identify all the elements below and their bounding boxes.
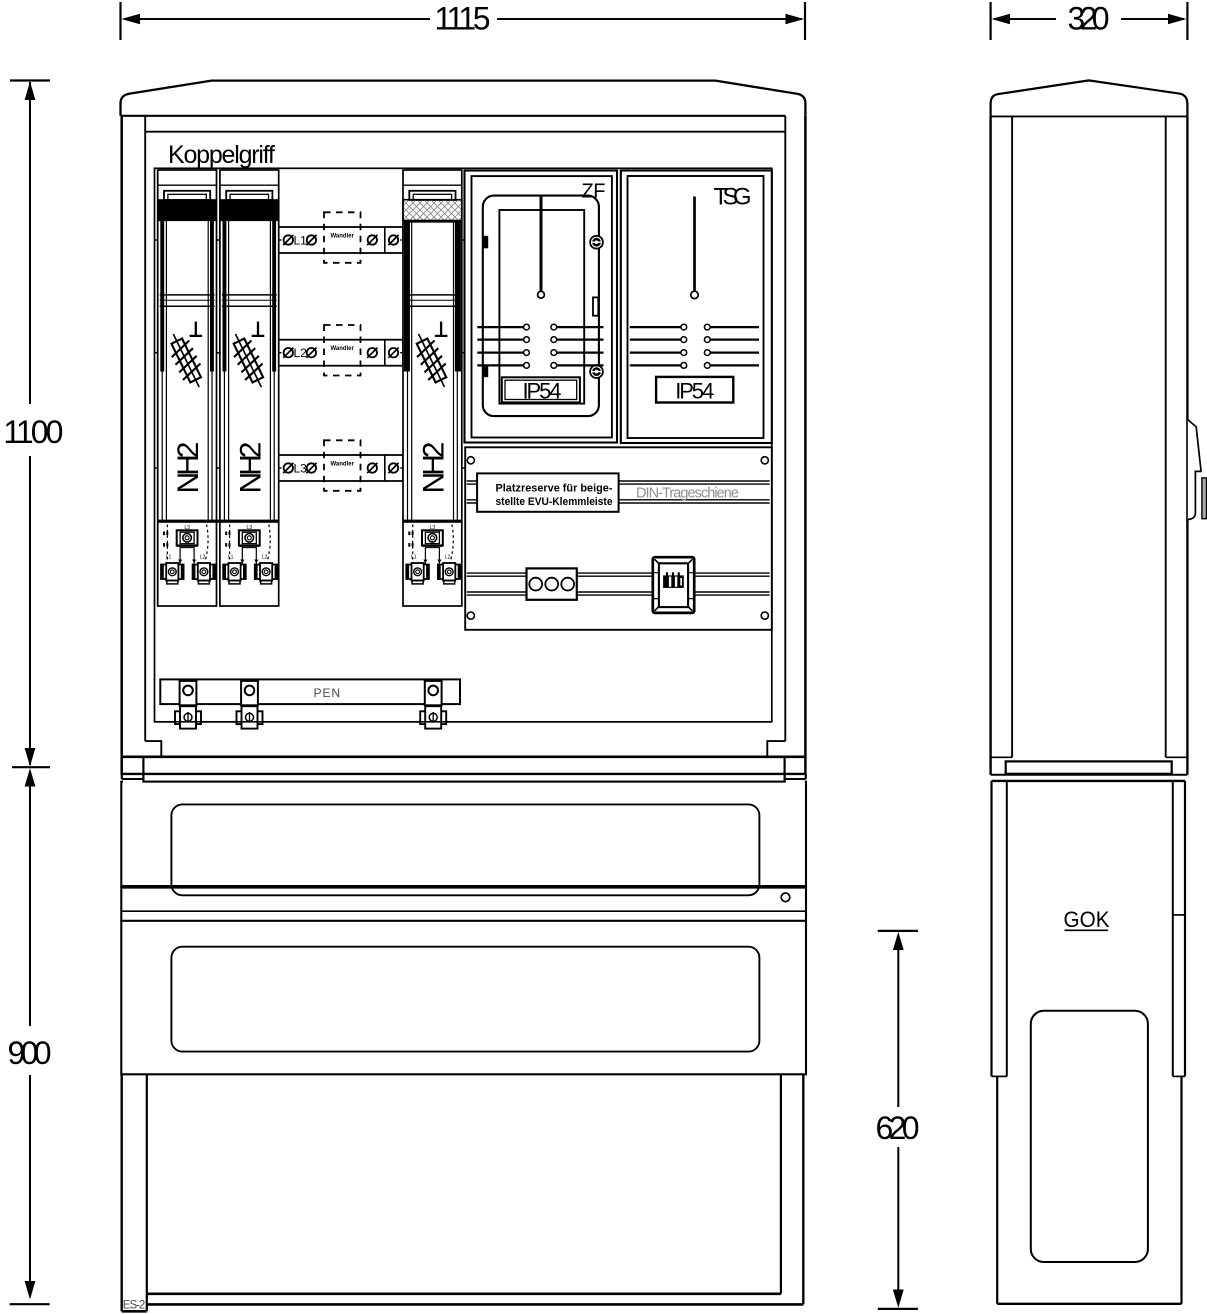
svg-text:L1: L1 — [411, 555, 417, 561]
svg-text:1115: 1115 — [435, 1, 491, 37]
svg-text:NH2: NH2 — [172, 442, 205, 494]
svg-text:Wandler: Wandler — [330, 462, 354, 468]
svg-text:ZF: ZF — [582, 181, 606, 203]
svg-text:GOK: GOK — [1064, 907, 1110, 932]
svg-text:L2: L2 — [262, 555, 268, 561]
svg-text:L2: L2 — [294, 346, 308, 360]
svg-text:IP54: IP54 — [523, 378, 562, 403]
svg-text:Wandler: Wandler — [330, 346, 354, 352]
svg-text:L1: L1 — [228, 555, 234, 561]
svg-text:900: 900 — [8, 1035, 52, 1071]
svg-text:620: 620 — [876, 1110, 920, 1146]
svg-text:L2: L2 — [200, 555, 206, 561]
svg-text:Koppelgriff: Koppelgriff — [168, 141, 275, 169]
svg-text:IP54: IP54 — [675, 378, 714, 403]
svg-text:320: 320 — [1068, 1, 1110, 37]
svg-text:NH2: NH2 — [417, 442, 450, 494]
svg-text:1100: 1100 — [3, 414, 63, 450]
svg-text:DIN-Trageschiene: DIN-Trageschiene — [636, 486, 739, 502]
svg-text:stellte EVU-Klemmleiste: stellte EVU-Klemmleiste — [496, 496, 613, 508]
svg-text:NH2: NH2 — [234, 442, 267, 494]
svg-text:L1: L1 — [294, 234, 308, 248]
svg-text:L1: L1 — [166, 555, 172, 561]
svg-text:ES-2: ES-2 — [123, 1300, 146, 1312]
svg-text:TSG: TSG — [714, 184, 752, 211]
svg-text:L3: L3 — [294, 462, 308, 476]
svg-text:Platzreserve für beige-: Platzreserve für beige- — [496, 483, 613, 495]
svg-text:L2: L2 — [445, 555, 451, 561]
svg-text:Wandler: Wandler — [330, 234, 354, 240]
svg-text:PEN: PEN — [314, 686, 341, 700]
